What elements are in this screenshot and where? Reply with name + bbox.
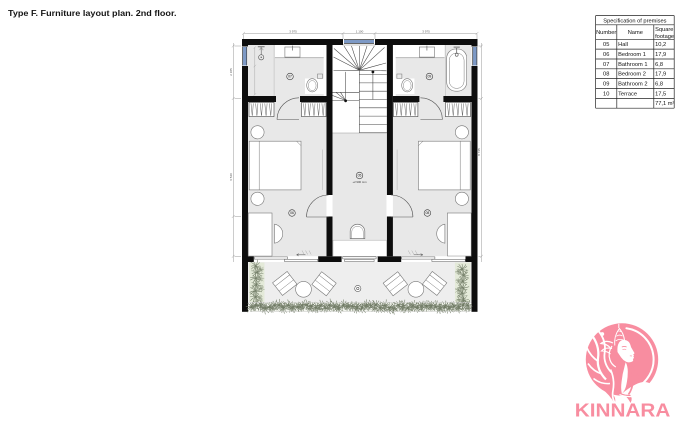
svg-text:08: 08 [603, 72, 609, 78]
svg-text:07: 07 [603, 62, 609, 68]
svg-text:Bedroom 1: Bedroom 1 [618, 52, 646, 58]
svg-text:06: 06 [603, 52, 609, 58]
svg-text:17,9: 17,9 [655, 52, 666, 58]
svg-text:09: 09 [428, 75, 432, 79]
svg-text:08: 08 [426, 211, 430, 215]
svg-text:07: 07 [288, 75, 292, 79]
svg-text:8 745: 8 745 [477, 148, 481, 156]
svg-text:Terrace: Terrace [618, 91, 637, 97]
svg-text:+2 900 mm: +2 900 mm [352, 180, 367, 184]
svg-text:6,8: 6,8 [655, 62, 663, 68]
svg-text:77,1 m²: 77,1 m² [655, 101, 674, 107]
svg-text:Bedroom 2: Bedroom 2 [618, 72, 646, 78]
svg-text:05: 05 [358, 174, 362, 178]
svg-text:09: 09 [603, 82, 609, 88]
svg-text:footage: footage [655, 34, 674, 40]
svg-text:Name: Name [628, 30, 643, 36]
svg-text:6,8: 6,8 [655, 82, 663, 88]
svg-text:05: 05 [603, 42, 609, 48]
svg-text:17,9: 17,9 [655, 72, 666, 78]
svg-text:Specification of premises: Specification of premises [603, 18, 666, 24]
svg-text:10,2: 10,2 [655, 42, 666, 48]
svg-text:Number: Number [596, 30, 616, 36]
svg-text:2 185: 2 185 [229, 68, 233, 76]
svg-text:Bathroom 2: Bathroom 2 [618, 82, 647, 88]
svg-text:1 100: 1 100 [356, 29, 364, 33]
svg-text:3 975: 3 975 [422, 29, 430, 33]
svg-text:Bathroom 1: Bathroom 1 [618, 62, 647, 68]
svg-text:Square: Square [655, 27, 673, 33]
svg-text:6 540: 6 540 [229, 173, 233, 181]
svg-text:Hall: Hall [618, 42, 628, 48]
svg-text:10: 10 [603, 91, 609, 97]
svg-text:KINNARA: KINNARA [575, 401, 671, 421]
svg-text:06: 06 [290, 211, 294, 215]
svg-text:3 975: 3 975 [289, 29, 297, 33]
svg-text:Type F. Furniture layout plan.: Type F. Furniture layout plan. 2nd floor… [8, 8, 176, 18]
svg-text:17,5: 17,5 [655, 91, 666, 97]
